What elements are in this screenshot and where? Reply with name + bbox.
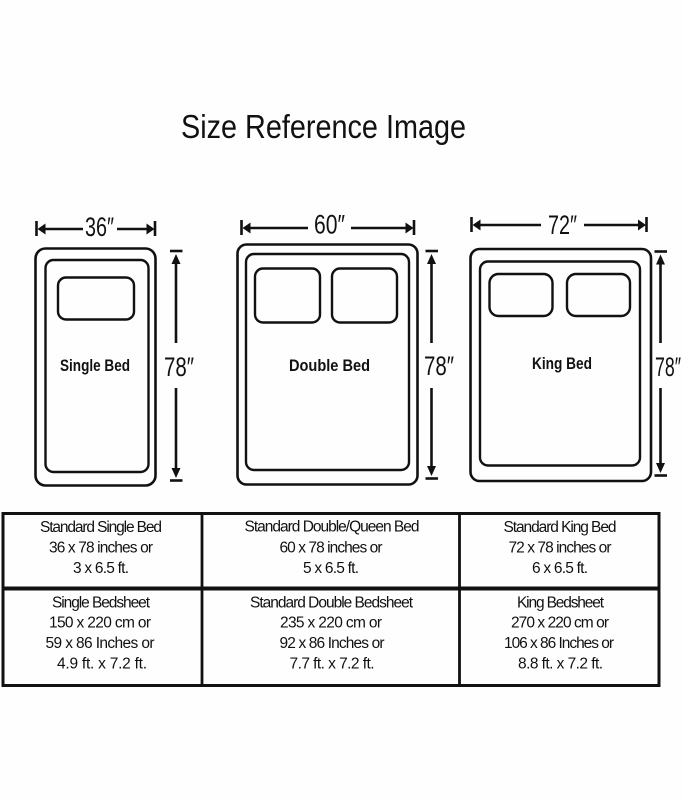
svg-text:Standard Double/Queen Bed: Standard Double/Queen Bed bbox=[245, 519, 420, 536]
svg-text:59 x 86 Inches or: 59 x 86 Inches or bbox=[46, 635, 155, 652]
svg-text:92 x 86 Inches or: 92 x 86 Inches or bbox=[280, 635, 385, 652]
svg-text:Size Reference Image: Size Reference Image bbox=[181, 109, 466, 146]
svg-text:Double Bed: Double Bed bbox=[289, 357, 370, 375]
svg-text:Standard Double Bedsheet: Standard Double Bedsheet bbox=[250, 595, 414, 612]
svg-text:36 x 78 inches or: 36 x 78 inches or bbox=[49, 540, 153, 557]
svg-text:6 x 6.5 ft.: 6 x 6.5 ft. bbox=[532, 560, 588, 577]
svg-text:60 x 78 inches or: 60 x 78 inches or bbox=[280, 540, 383, 557]
svg-text:78″: 78″ bbox=[164, 352, 194, 382]
svg-text:78″: 78″ bbox=[424, 351, 454, 381]
svg-text:270 x 220 cm or: 270 x 220 cm or bbox=[511, 615, 609, 632]
svg-text:150 x 220 cm or: 150 x 220 cm or bbox=[49, 615, 151, 632]
svg-text:72 x 78 inches or: 72 x 78 inches or bbox=[509, 540, 612, 557]
svg-text:Standard King Bed: Standard King Bed bbox=[504, 519, 617, 536]
svg-text:72″: 72″ bbox=[548, 210, 577, 240]
svg-text:Single Bedsheet: Single Bedsheet bbox=[52, 595, 151, 612]
svg-text:60″: 60″ bbox=[314, 210, 345, 240]
svg-text:8.8 ft. x 7.2 ft.: 8.8 ft. x 7.2 ft. bbox=[518, 656, 603, 673]
svg-text:106 x 86 Inches or: 106 x 86 Inches or bbox=[504, 635, 614, 652]
svg-text:36″: 36″ bbox=[85, 212, 114, 242]
svg-text:3 x 6.5 ft.: 3 x 6.5 ft. bbox=[73, 560, 129, 577]
svg-text:Single Bed: Single Bed bbox=[60, 357, 130, 375]
svg-text:78″: 78″ bbox=[655, 352, 681, 382]
svg-text:King Bedsheet: King Bedsheet bbox=[517, 595, 605, 612]
svg-text:King Bed: King Bed bbox=[532, 355, 592, 373]
svg-text:7.7 ft. x 7.2 ft.: 7.7 ft. x 7.2 ft. bbox=[290, 656, 375, 673]
svg-text:5 x 6.5 ft.: 5 x 6.5 ft. bbox=[303, 560, 359, 577]
svg-text:235 x 220 cm or: 235 x 220 cm or bbox=[280, 615, 382, 632]
svg-text:4.9 ft. x 7.2 ft.: 4.9 ft. x 7.2 ft. bbox=[57, 656, 147, 673]
svg-text:Standard Single Bed: Standard Single Bed bbox=[40, 519, 162, 536]
